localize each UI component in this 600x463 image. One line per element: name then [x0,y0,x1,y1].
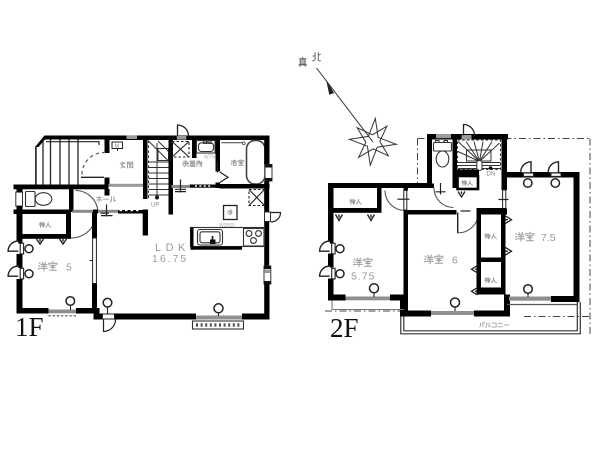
svg-text:16.75: 16.75 [152,253,188,265]
svg-text:1F: 1F [15,312,44,342]
svg-text:UP: UP [151,203,159,209]
svg-text:5.75: 5.75 [351,271,375,283]
svg-text:W750: W750 [204,155,217,161]
svg-text:7.5: 7.5 [541,232,556,244]
svg-text:DN: DN [487,172,496,178]
svg-text:2F: 2F [330,313,359,343]
svg-text:5: 5 [66,262,72,274]
svg-text:6: 6 [452,255,458,267]
